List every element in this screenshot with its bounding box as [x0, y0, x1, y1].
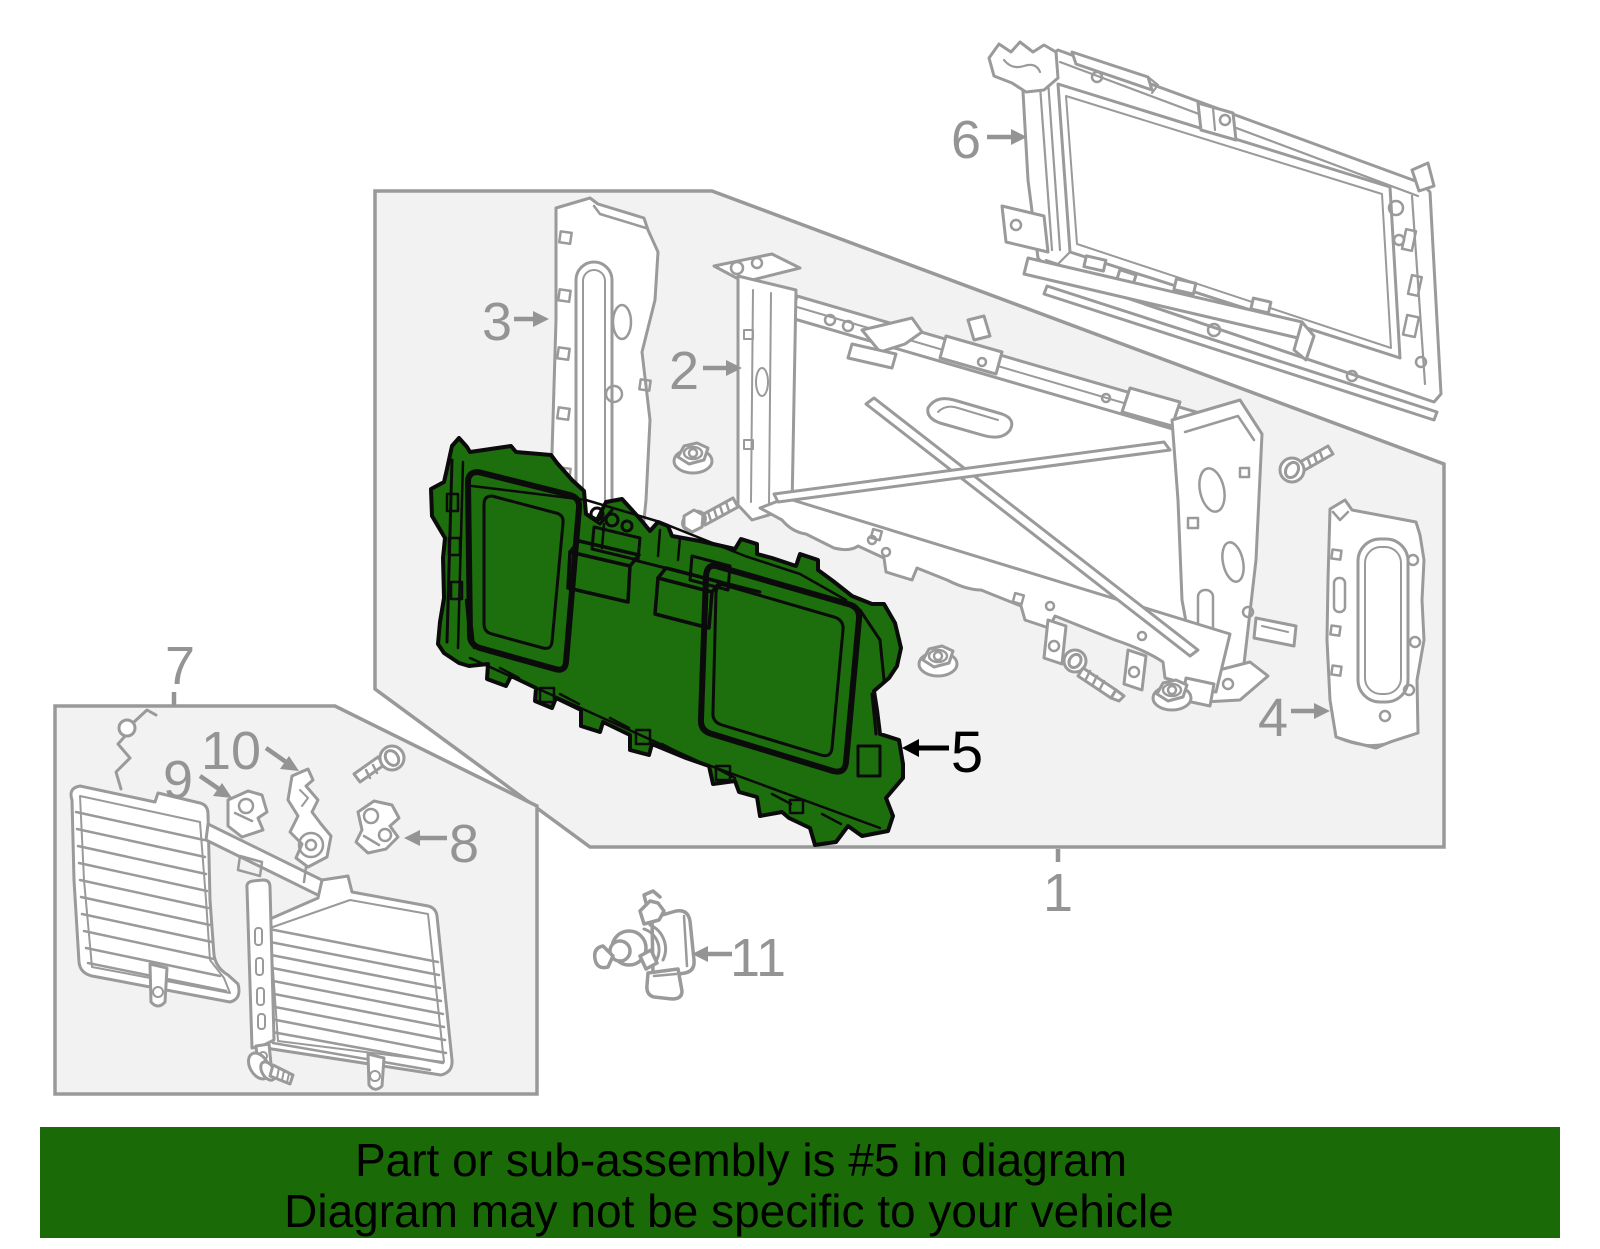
svg-text:2: 2 — [669, 341, 699, 401]
svg-text:4: 4 — [1258, 688, 1288, 748]
svg-text:5: 5 — [951, 720, 983, 785]
svg-text:3: 3 — [482, 292, 512, 352]
svg-text:11: 11 — [730, 928, 786, 988]
svg-text:6: 6 — [951, 110, 981, 170]
svg-text:1: 1 — [1043, 863, 1073, 923]
svg-text:7: 7 — [165, 636, 195, 696]
svg-text:10: 10 — [201, 721, 261, 781]
svg-text:9: 9 — [163, 750, 193, 810]
svg-text:Diagram may not be specific to: Diagram may not be specific to your vehi… — [284, 1185, 1174, 1237]
svg-text:Part or sub-assembly is #5 in: Part or sub-assembly is #5 in diagram — [355, 1134, 1127, 1186]
svg-text:8: 8 — [449, 814, 479, 874]
